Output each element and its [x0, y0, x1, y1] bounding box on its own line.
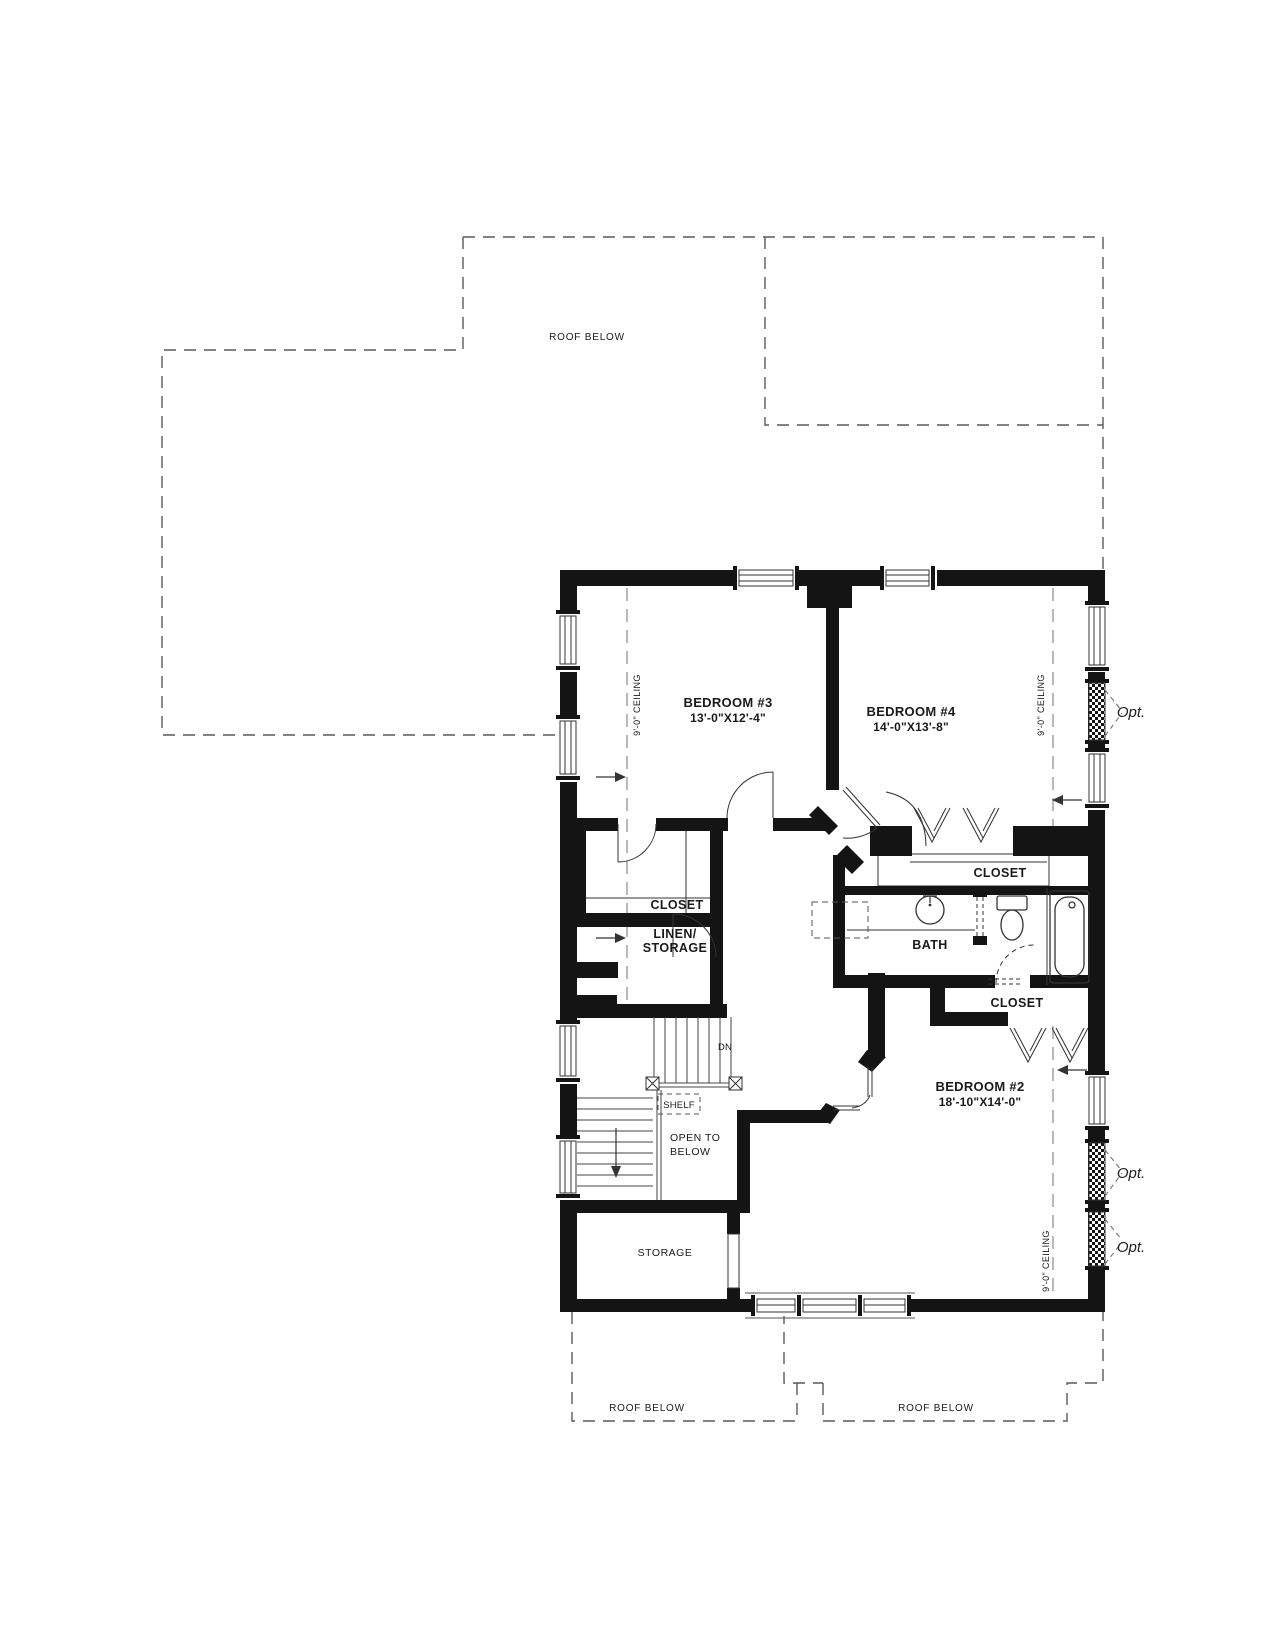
floor-plan: ROOF BELOW ROOF BELOW ROOF BELOW BEDROOM… [0, 0, 1275, 1650]
roof-below-label-top: ROOF BELOW [549, 332, 625, 343]
optional-window-2 [1085, 1139, 1109, 1204]
ceiling-label-bedroom4: 9'-0" CEILING [1036, 674, 1046, 736]
storage-door [728, 1234, 739, 1288]
linen-label-line2: STORAGE [643, 941, 707, 955]
optional-window-3 [1085, 1208, 1109, 1270]
hall-closet-door [618, 824, 656, 862]
dn-label: DN [718, 1042, 732, 1053]
opt-label-1: Opt. [1117, 704, 1145, 721]
window-bottom-triple [745, 1293, 915, 1318]
window-top-1 [733, 566, 799, 590]
window-left-1 [556, 610, 580, 672]
bath-optional-door-swing [996, 945, 1034, 983]
window-right-3 [1085, 1071, 1109, 1130]
bath-label: BATH [912, 938, 947, 952]
br4-closet-label: CLOSET [973, 866, 1026, 880]
hall-closet-label: CLOSET [650, 898, 703, 912]
roof-below-label-bottom-left: ROOF BELOW [609, 1403, 685, 1414]
bedroom4-name: BEDROOM #4 [867, 704, 956, 719]
bedroom2-name: BEDROOM #2 [936, 1079, 1025, 1094]
toilet [997, 896, 1027, 940]
bath-pocket-door [977, 897, 983, 938]
bedroom2-dims: 18'-10"X14'-0" [939, 1095, 1022, 1109]
br4-closet-bifold [914, 808, 999, 842]
br2-closet-label: CLOSET [990, 996, 1043, 1010]
window-right-2 [1085, 748, 1109, 810]
open-to-below-line2: BELOW [670, 1146, 710, 1158]
opt-label-2: Opt. [1117, 1165, 1145, 1182]
bedroom4-dims: 14'-0"X13'-8" [873, 720, 949, 734]
bedroom3-door [727, 772, 773, 818]
ceiling-label-bedroom2: 9'-0" CEILING [1041, 1230, 1051, 1292]
stairs [577, 1017, 731, 1200]
br2-closet-bifold [1010, 1028, 1088, 1062]
floor-plan-page: ROOF BELOW ROOF BELOW ROOF BELOW BEDROOM… [0, 0, 1275, 1650]
bath-fixtures [916, 891, 1089, 983]
bedroom2-door [833, 1067, 872, 1110]
window-left-2 [556, 715, 580, 782]
bedroom3-dims: 13'-0"X12'-4" [690, 711, 766, 725]
ceiling-label-left: 9'-0" CEILING [632, 674, 642, 736]
window-left-3 [556, 1020, 580, 1084]
shelf-label: SHELF [663, 1100, 695, 1111]
storage-label: STORAGE [638, 1247, 693, 1259]
bathtub [1050, 891, 1089, 983]
window-left-4 [556, 1135, 580, 1200]
linen-label-line1: LINEN/ [653, 927, 697, 941]
window-right-1 [1085, 601, 1109, 672]
optional-window-1 [1085, 679, 1109, 744]
bedroom3-name: BEDROOM #3 [684, 695, 773, 710]
roof-outline-top [162, 237, 1103, 735]
sink [916, 896, 944, 924]
window-top-2 [880, 566, 937, 590]
open-to-below-line1: OPEN TO [670, 1132, 720, 1144]
roof-below-label-bottom-right: ROOF BELOW [898, 1403, 974, 1414]
opt-label-3: Opt. [1117, 1239, 1145, 1256]
